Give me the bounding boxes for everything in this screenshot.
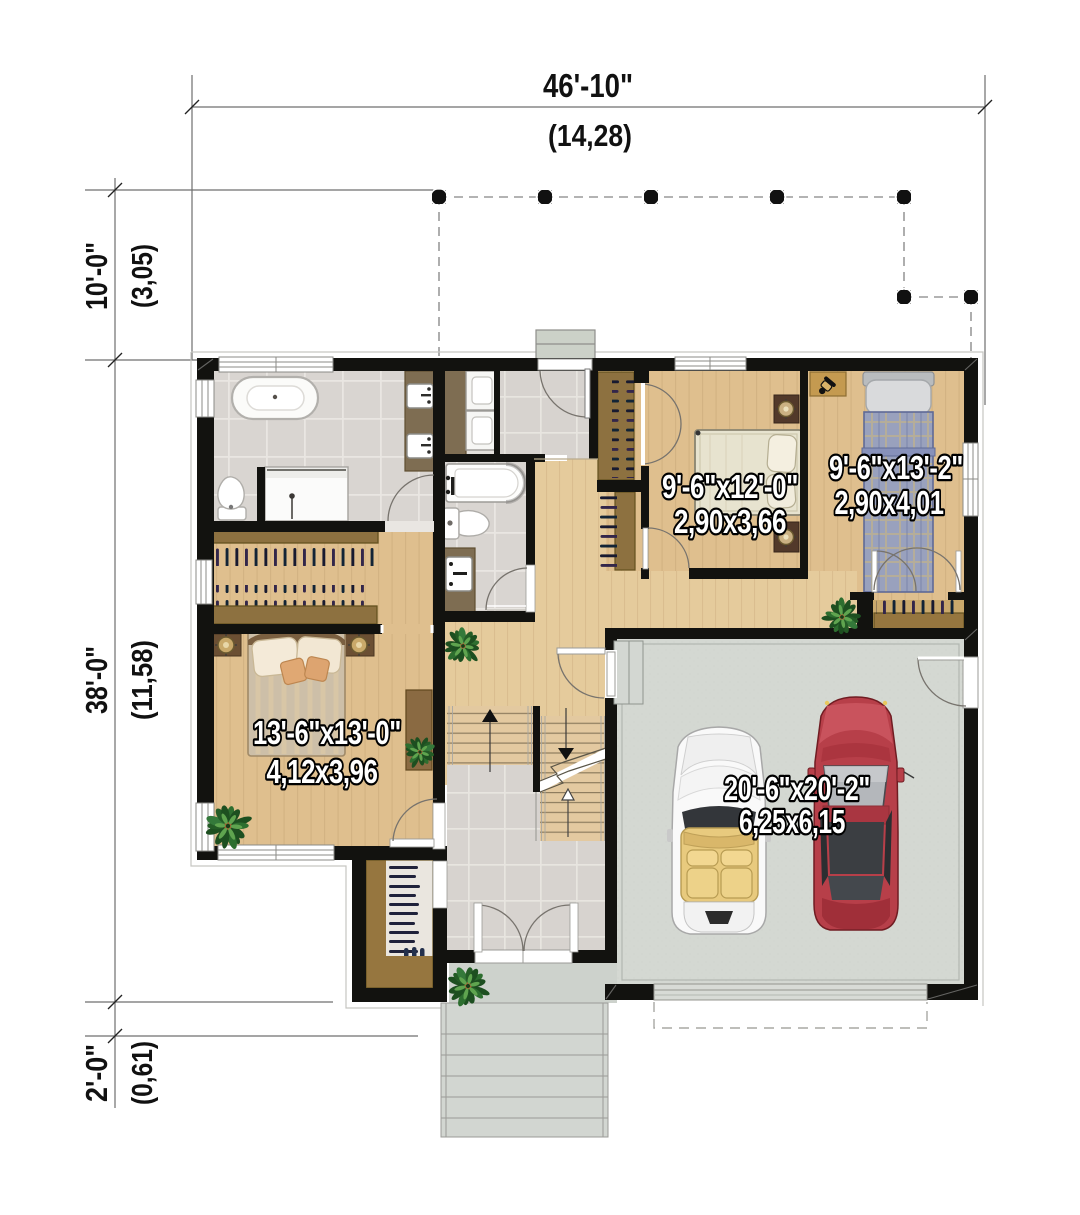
svg-text:4,12x3,96: 4,12x3,96 (267, 753, 378, 790)
svg-text:10'-0": 10'-0" (79, 242, 114, 310)
svg-text:9'-6"x12'-0": 9'-6"x12'-0" (662, 468, 798, 505)
svg-text:38'-0": 38'-0" (79, 646, 114, 714)
svg-text:2'-0": 2'-0" (79, 1044, 114, 1102)
svg-text:20'-6"x20'-2": 20'-6"x20'-2" (724, 770, 870, 807)
svg-text:(11,58): (11,58) (127, 640, 159, 720)
svg-text:6,25x6,15: 6,25x6,15 (739, 803, 845, 840)
svg-text:2,90x3,66: 2,90x3,66 (674, 503, 786, 540)
svg-text:46'-10": 46'-10" (543, 67, 633, 104)
svg-text:(0,61): (0,61) (127, 1041, 159, 1105)
svg-text:9'-6"x13'-2": 9'-6"x13'-2" (829, 449, 963, 486)
svg-text:13'-6"x13'-0": 13'-6"x13'-0" (253, 714, 401, 751)
svg-text:(3,05): (3,05) (127, 244, 159, 308)
svg-text:(14,28): (14,28) (548, 118, 632, 153)
svg-text:2,90x4,01: 2,90x4,01 (835, 484, 944, 521)
